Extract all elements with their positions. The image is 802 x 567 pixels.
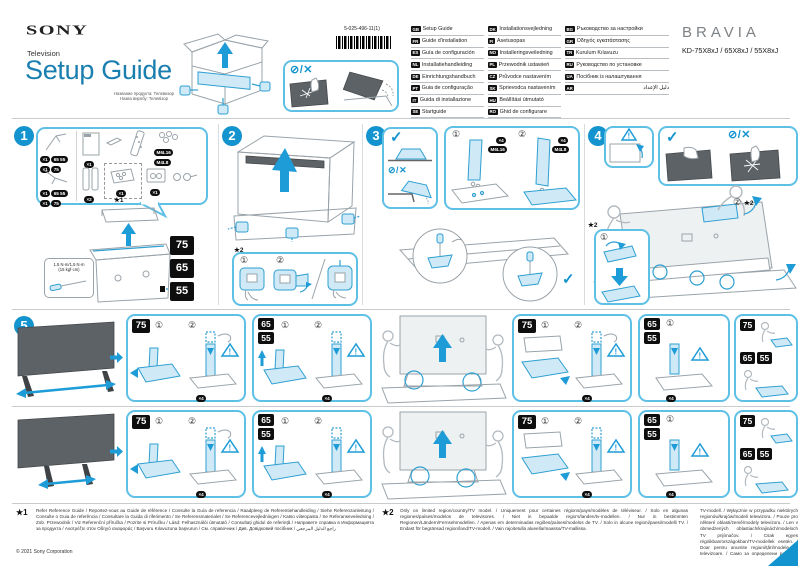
neck-insert-illustration: ! — [310, 426, 368, 484]
warning-triangle-icon: ! — [692, 444, 708, 457]
language-label: Beállítási útmutató — [499, 97, 543, 103]
language-row: ARدليل الإعداد — [565, 83, 669, 95]
final-check-6555-illustration — [740, 368, 792, 398]
stand-leg-b-badges: ×165 55 ×175 — [40, 187, 69, 207]
qty-badge: ×1 — [40, 200, 50, 207]
page-title: Setup Guide — [25, 55, 172, 86]
neck-insert-illustration: ! — [652, 432, 722, 486]
language-row: NOInstalleringsveiledning — [488, 48, 561, 60]
qty-badge: ×1 — [40, 156, 50, 163]
language-row: GRΟδηγός εγκατάστασης — [565, 36, 669, 48]
neck-insert-illustration: ! — [184, 426, 242, 484]
handle-fold-illustration — [598, 242, 646, 302]
right-arrow-icon — [110, 446, 124, 458]
right-down-arrow-icon — [560, 376, 570, 385]
size-75-badge: 75 — [170, 236, 194, 255]
no-press-screen-illustration — [288, 76, 336, 108]
down-arrow-icon — [611, 268, 628, 286]
language-code-badge: SE — [411, 109, 420, 115]
screw-bag-illustration — [109, 168, 135, 184]
check-icon: ✓ — [666, 128, 679, 146]
language-label: Ghid de configurare — [500, 109, 547, 115]
page-turn-corner-icon — [768, 540, 800, 567]
up-arrow-icon — [258, 446, 266, 462]
warning-triangle-icon: ! — [222, 344, 238, 357]
language-label: Guida di installazione — [420, 97, 471, 103]
clip-rotate-illustration — [272, 266, 310, 302]
substep-2-number: ② — [276, 255, 284, 266]
svg-text:!: ! — [699, 352, 702, 361]
check-icon: ✓ — [562, 271, 575, 288]
size-55-badge: 55 — [757, 448, 772, 460]
mount-tv-on-stand-illustration — [378, 310, 508, 404]
title-subtitle: Название продукта: Телевизор Назва вироб… — [112, 91, 176, 101]
hand-shape — [311, 78, 319, 92]
screwdriver-icon — [49, 278, 89, 292]
language-row: FIAsetusopas — [488, 36, 561, 48]
language-label: Guia de configuração — [422, 85, 473, 91]
right-down-arrow-icon — [560, 472, 570, 481]
language-row: SEStartguide — [411, 107, 484, 119]
stand-screw-qty-badge: ×4 — [666, 392, 677, 402]
substep-2-number: ② — [733, 197, 741, 208]
neck-insert-illustration: ! — [570, 330, 628, 388]
language-code-badge: RO — [488, 109, 498, 115]
hand-shape — [684, 147, 698, 158]
hand-shape — [751, 146, 760, 162]
size-65-badge: 65 — [258, 414, 274, 426]
size-65-badge: 65 — [258, 318, 274, 330]
torque-value: 1.5 N·m/1,5 N·m — [54, 262, 85, 267]
leg-attach-1-illustration — [450, 138, 512, 204]
step-1-number: 1 — [14, 126, 34, 146]
language-code-badge: FR — [411, 38, 420, 44]
language-code-badge: DE — [411, 74, 420, 80]
tv-front-wide-stance-illustration — [14, 322, 120, 402]
press-screen-ng-illustration — [728, 146, 790, 182]
clip-pull-illustration — [326, 260, 354, 300]
model-numbers: KD-75X8xJ / 65X8xJ / 55X8xJ — [682, 46, 778, 55]
warning-triangle-icon: ! — [348, 344, 364, 357]
prohibition-icon: ⊘/✕ — [290, 63, 313, 76]
warning-triangle-icon: ! — [622, 129, 636, 141]
highlight-band — [198, 72, 250, 89]
screw-spec-badge: M4L8 — [154, 159, 171, 166]
stand-neck-illustration — [82, 167, 100, 191]
footnote-2-marker: ★2 — [744, 199, 753, 207]
language-label: Průvodce nastavením — [499, 74, 551, 80]
prohibition-icon: ⊘/✕ — [388, 165, 407, 176]
substep-1-number: ① — [666, 318, 674, 329]
svg-text:!: ! — [615, 444, 618, 453]
warning-triangle-icon: ! — [608, 440, 624, 453]
language-row: BGРъководство за настройки — [565, 24, 669, 36]
footnote-1-marker: ★1 — [16, 508, 28, 517]
language-label: Kurulum Kılavuzu — [576, 50, 618, 56]
language-code-badge: RU — [565, 62, 574, 68]
footnote-1-text: Refer Reference Guide / Reportez-vous au… — [36, 508, 374, 533]
cable-holder-illustration — [172, 172, 198, 183]
stand-slide-illustration — [130, 436, 182, 482]
svg-text:!: ! — [615, 348, 618, 357]
language-row: UAПосібник із налаштування — [565, 71, 669, 83]
attach-legs-tv-facedown-illustration: ✓ — [378, 212, 580, 306]
footnote-2-marker: ★2 — [588, 221, 597, 229]
language-label: Guide d'installation — [422, 38, 467, 44]
size-65-badge: 65 — [740, 352, 755, 364]
stand-slide-illustration — [256, 440, 308, 484]
unbox-stand-illustration — [84, 206, 174, 306]
language-code-badge: PT — [411, 85, 420, 91]
footer-divider — [12, 503, 790, 504]
size-55-badge: 55 — [258, 332, 274, 344]
person-left — [383, 331, 400, 377]
size-65-badge: 65 — [170, 259, 194, 278]
language-row: DEEinrichtungshandbuch — [411, 71, 484, 83]
size-75-badge: 75 — [132, 415, 150, 429]
language-label: Installationsvejledning — [499, 26, 552, 32]
stand-screw-qty-badge: ×4 — [322, 488, 333, 498]
svg-text:!: ! — [699, 448, 702, 457]
language-code-badge: BG — [565, 26, 575, 32]
warning-triangle-icon: ! — [608, 344, 624, 357]
person-right — [486, 335, 503, 381]
size-55-badge: 55 — [170, 282, 194, 301]
clip-hold-illustration — [238, 266, 268, 302]
language-code-badge: UA — [565, 74, 574, 80]
left-arrow-icon — [130, 464, 138, 474]
language-label: Guía de configuración — [422, 50, 475, 56]
substep-1-number: ① — [281, 416, 289, 427]
language-row: DKInstallationsvejledning — [488, 24, 561, 36]
language-code-badge: GB — [411, 26, 421, 32]
header-divider — [12, 118, 790, 119]
svg-text:!: ! — [229, 444, 232, 453]
bravia-logo: BRAVIA — [682, 24, 760, 41]
qty-badge: ×2 — [84, 196, 94, 203]
language-row: SKSprievodca nastavením — [488, 83, 561, 95]
stand-slide-illustration — [130, 340, 182, 386]
language-code-badge: DK — [488, 26, 497, 32]
language-row: HUBeállítási útmutató — [488, 95, 561, 107]
language-label: Installatiehandleiding — [422, 62, 472, 68]
footnote-2-marker: ★2 — [382, 508, 394, 517]
language-code-badge: NL — [411, 62, 420, 68]
step1-2-divider — [218, 124, 219, 305]
tv-front-narrow-stance-illustration — [14, 414, 120, 494]
step3-4-divider — [584, 124, 585, 305]
language-label: Einrichtungshandbuch — [422, 74, 475, 80]
step2-3-divider — [362, 124, 363, 305]
size-65-badge: 65 — [644, 318, 660, 330]
language-row: ROGhid de configurare — [488, 107, 561, 119]
neck-insert-illustration: ! — [570, 426, 628, 484]
copyright-notice: © 2021 Sony Corporation — [16, 549, 73, 555]
neck-insert-illustration: ! — [184, 330, 242, 388]
language-code-badge: PL — [488, 62, 497, 68]
stand-screw-qty-badge: ×4 — [196, 392, 207, 402]
substep-1-number: ① — [541, 416, 549, 427]
stand-screw-qty-badge: ×4 — [322, 392, 333, 402]
stand-screw-qty-badge: ×4 — [666, 488, 677, 498]
language-row: ESGuía de configuración — [411, 48, 484, 60]
language-label: Sprievodca nastavením — [499, 85, 555, 91]
size-75-badge: 75 — [518, 415, 536, 429]
language-code-badge: FI — [488, 38, 495, 44]
final-check-6555-illustration — [740, 464, 792, 494]
tip-over-illustration — [342, 72, 394, 110]
up-arrow-icon — [121, 223, 136, 246]
language-code-badge: GR — [565, 38, 575, 44]
person-right — [486, 431, 503, 477]
size-75-badge: 75 — [518, 319, 536, 333]
warning-triangle-icon: ! — [692, 348, 708, 361]
language-row: CZPrůvodce nastavením — [488, 71, 561, 83]
language-column-3: BGРъководство за настройки GRΟδηγός εγκα… — [565, 24, 669, 95]
parts-grid-divider — [76, 131, 77, 201]
torque-value-alt: (15 kgf·cm) — [58, 267, 79, 272]
language-row: PLPrzewodnik ustawień — [488, 59, 561, 71]
language-code-badge: HU — [488, 97, 497, 103]
stand-slide-illustration — [256, 344, 308, 388]
prohibition-icon: ⊘/✕ — [728, 128, 751, 141]
language-row: RUРуководство по установке — [565, 59, 669, 71]
cover-slide-illustration — [516, 432, 571, 482]
mount-tv-on-stand-illustration — [378, 406, 508, 500]
barcode — [336, 36, 392, 49]
language-label: Startguide — [422, 109, 447, 115]
grip-frame-ok-illustration — [664, 146, 718, 182]
language-row: PTGuia de configuração — [411, 83, 484, 95]
torque-note: 1.5 N·m/1,5 N·m (15 kgf·cm) — [44, 258, 94, 298]
substep-1-number: ① — [155, 416, 163, 427]
language-row: FRGuide d'installation — [411, 36, 484, 48]
svg-text:!: ! — [229, 348, 232, 357]
washer-bag-illustration — [146, 168, 166, 183]
raise-tv-warning-illustration: ! — [608, 128, 652, 166]
qty-badge: ×1 — [150, 189, 160, 196]
stand-neck-badge: ×2 — [84, 193, 95, 203]
language-row: TRKurulum Kılavuzu — [565, 48, 669, 60]
footnote-1-marker: ★1 — [114, 196, 123, 204]
language-row: NLInstallatiehandleiding — [411, 59, 484, 71]
carton-box-illustration — [180, 26, 270, 114]
size-badge: 65 55 — [51, 190, 68, 197]
size-75-badge: 75 — [132, 319, 150, 333]
size-badge: 75 — [51, 200, 61, 207]
cover-slide-illustration — [516, 336, 571, 386]
language-label: Asetusopas — [497, 38, 525, 44]
subtitle-line-2: Назва виробу: Телевізор — [120, 96, 168, 101]
small-part-illustration — [106, 137, 122, 146]
substep-1-number: ① — [155, 320, 163, 331]
language-label: Setup Guide — [423, 26, 453, 32]
stand-on-surface-ok-illustration — [388, 147, 432, 163]
stand-screw-qty-badge: ×4 — [196, 488, 207, 498]
warning-triangle-icon: ! — [348, 440, 364, 453]
substep-1-number: ① — [281, 320, 289, 331]
language-label: Przewodnik ustawień — [499, 62, 550, 68]
language-code-badge: AR — [565, 85, 574, 91]
stand-overhang-ng-illustration — [388, 178, 434, 204]
size-55-badge: 55 — [757, 352, 772, 364]
substep-1-number: ① — [666, 414, 674, 425]
screw-spec-badge: M6L16 — [154, 149, 173, 156]
size-65-badge: 65 — [644, 414, 660, 426]
person-left — [383, 427, 400, 473]
final-check-75-illustration — [757, 320, 793, 348]
language-label: Installeringsveiledning — [500, 50, 553, 56]
stand-leg-a-illustration — [42, 132, 70, 152]
remote-control-illustration — [128, 131, 150, 157]
language-label: Руководство по установке — [576, 62, 641, 68]
language-row: GBSetup Guide — [411, 24, 484, 36]
up-arrow-icon — [258, 350, 266, 366]
size-65-badge: 65 — [740, 448, 755, 460]
substep-1-number: ① — [541, 320, 549, 331]
svg-text:!: ! — [355, 348, 358, 357]
stand-screw-qty-badge: ×4 — [582, 392, 593, 402]
svg-text:!: ! — [628, 132, 631, 141]
part-number: 5-025-496-11(1) — [330, 26, 394, 32]
language-code-badge: CZ — [488, 74, 497, 80]
leg-attach-2-illustration — [516, 136, 578, 206]
right-arrow-icon — [110, 352, 124, 364]
final-check-75-illustration — [757, 416, 793, 444]
language-code-badge: IT — [411, 97, 418, 103]
setup-guide-page: SONY Television Setup Guide Название про… — [0, 0, 802, 567]
language-code-badge: NO — [488, 50, 498, 56]
check-icon: ✓ — [390, 128, 403, 146]
neck-insert-illustration: ! — [310, 330, 368, 388]
lift-tv-from-box-illustration — [228, 128, 360, 242]
size-75-badge: 75 — [740, 415, 755, 427]
language-label: Посібник із налаштування — [576, 74, 641, 80]
language-label: Οδηγός εγκατάστασης — [577, 38, 630, 44]
language-column-2: DKInstallationsvejledning FIAsetusopas N… — [488, 24, 561, 118]
screws-illustration — [158, 131, 180, 144]
size-badge: 65 55 — [51, 156, 68, 163]
up-arrow-icon — [217, 42, 233, 68]
language-label: Ръководство за настройки — [577, 26, 643, 32]
printed-guide-illustration — [82, 132, 100, 156]
sony-logo: SONY — [26, 24, 88, 39]
footnote-2-text: Only on limited region/country/TV model.… — [400, 508, 688, 533]
left-arrow-icon — [130, 368, 138, 378]
language-column-1: GBSetup Guide FRGuide d'installation ESG… — [411, 24, 484, 118]
language-code-badge: TR — [565, 50, 574, 56]
language-code-badge: SK — [488, 85, 497, 91]
washer-bag-badge: ×1 — [150, 186, 161, 196]
language-label: دليل الإعداد — [643, 85, 669, 91]
packing-clip-icons — [228, 214, 360, 242]
stand-leg-b-illustration — [42, 166, 70, 186]
svg-text:!: ! — [355, 444, 358, 453]
warning-triangle-icon: ! — [222, 440, 238, 453]
size-55-badge: 55 — [258, 428, 274, 440]
stand-screw-qty-badge: ×4 — [582, 488, 593, 498]
screw-size-badges: M6L16 M4L8 — [154, 146, 174, 166]
language-code-badge: ES — [411, 50, 420, 56]
language-row: ITGuida di installazione — [411, 95, 484, 107]
qty-badge: ×1 — [40, 190, 50, 197]
size-75-badge: 75 — [740, 319, 755, 331]
neck-insert-illustration: ! — [652, 336, 722, 390]
substep-1-number: ① — [240, 255, 248, 266]
